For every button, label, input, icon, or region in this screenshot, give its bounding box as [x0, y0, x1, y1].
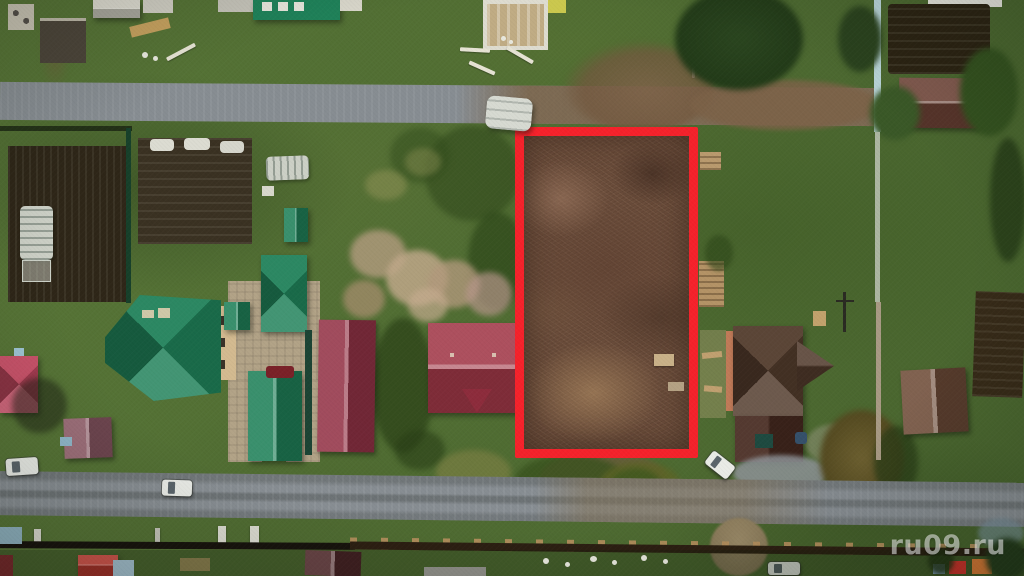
plot-soil [524, 136, 689, 449]
shed-green-roof [248, 371, 302, 461]
roof-dark-red [0, 555, 13, 576]
car-white [5, 457, 38, 476]
white-object [663, 559, 668, 564]
aerial-photo: ru09.ru [0, 0, 1024, 576]
house-brown-roof [733, 326, 803, 416]
fence [875, 132, 880, 302]
porch-roof [224, 302, 250, 330]
blue-object [60, 437, 72, 446]
white-block [278, 2, 288, 11]
white-object [501, 36, 506, 41]
antenna-mast [843, 292, 846, 332]
covered-bed [220, 141, 244, 153]
boards [180, 558, 210, 571]
outbuilding-maroon-roof [317, 320, 376, 453]
autumn-bush [466, 272, 512, 316]
white-object [543, 558, 549, 564]
car-red [266, 366, 294, 378]
autumn-bush [343, 280, 385, 318]
white-object [641, 555, 647, 561]
shed-green-roof [284, 208, 308, 242]
shed-gray [424, 567, 486, 576]
white-object [565, 562, 570, 567]
boards [654, 354, 674, 366]
house-red-roof-small [78, 555, 118, 576]
white-object [262, 186, 274, 196]
chimney [492, 353, 496, 357]
greenhouse [266, 155, 310, 180]
construction-house [93, 0, 140, 18]
greenhouse-frame [22, 260, 51, 282]
blue-object [795, 432, 807, 444]
fence [876, 302, 881, 460]
house-red-roof [428, 323, 517, 413]
white-block [262, 2, 272, 11]
watermark: ru09.ru [890, 530, 1006, 561]
car-windshield [168, 482, 176, 493]
antenna-crossbar [836, 300, 854, 302]
garden-beds [138, 138, 252, 244]
white-object [142, 52, 148, 58]
shed-blue-roof [113, 560, 134, 576]
tree [838, 6, 882, 72]
chimney [450, 353, 454, 357]
porch-gable [462, 389, 492, 413]
shed-dark [40, 18, 86, 63]
house-small-brown-roof [900, 367, 968, 434]
bottom-shade [0, 550, 1024, 576]
highlighted-plot-outline [515, 127, 698, 458]
tree [990, 138, 1024, 262]
fence [126, 128, 131, 303]
car-white [162, 479, 193, 496]
barn-green-roof [253, 0, 340, 20]
fence-post [155, 528, 160, 542]
skylight [142, 310, 154, 318]
boards [668, 382, 684, 391]
green-object [755, 434, 773, 448]
white-object [153, 56, 158, 61]
construction-materials [700, 330, 726, 418]
fence [305, 330, 312, 455]
autumn-bush [408, 288, 448, 322]
construction-blocks [8, 4, 34, 30]
white-structure [340, 0, 362, 11]
yellow-structure [548, 0, 566, 13]
covered-bed [184, 138, 210, 150]
tree [960, 48, 1018, 136]
construction-house [143, 0, 173, 13]
covered-bed [150, 139, 174, 151]
shed-blue-roof [0, 527, 22, 544]
pallet [700, 152, 721, 170]
tilled-field [972, 291, 1024, 398]
bush [405, 148, 441, 176]
construction-house-unfinished [483, 0, 548, 50]
shadow-patch [12, 378, 67, 433]
skylight [158, 308, 170, 318]
roof-maroon-small [305, 550, 362, 576]
shed-green-roof [261, 255, 307, 332]
fence [0, 126, 132, 131]
white-trailer [485, 95, 534, 132]
car-windshield [710, 455, 722, 468]
blue-object [14, 348, 24, 356]
garden-table [813, 311, 826, 326]
white-block [294, 2, 304, 11]
white-object [612, 560, 617, 565]
bush [705, 235, 733, 271]
car-windshield [12, 461, 20, 473]
white-object [590, 556, 597, 562]
bush [365, 170, 407, 200]
construction-house [218, 0, 256, 12]
white-object [509, 40, 513, 44]
greenhouse [20, 206, 53, 260]
